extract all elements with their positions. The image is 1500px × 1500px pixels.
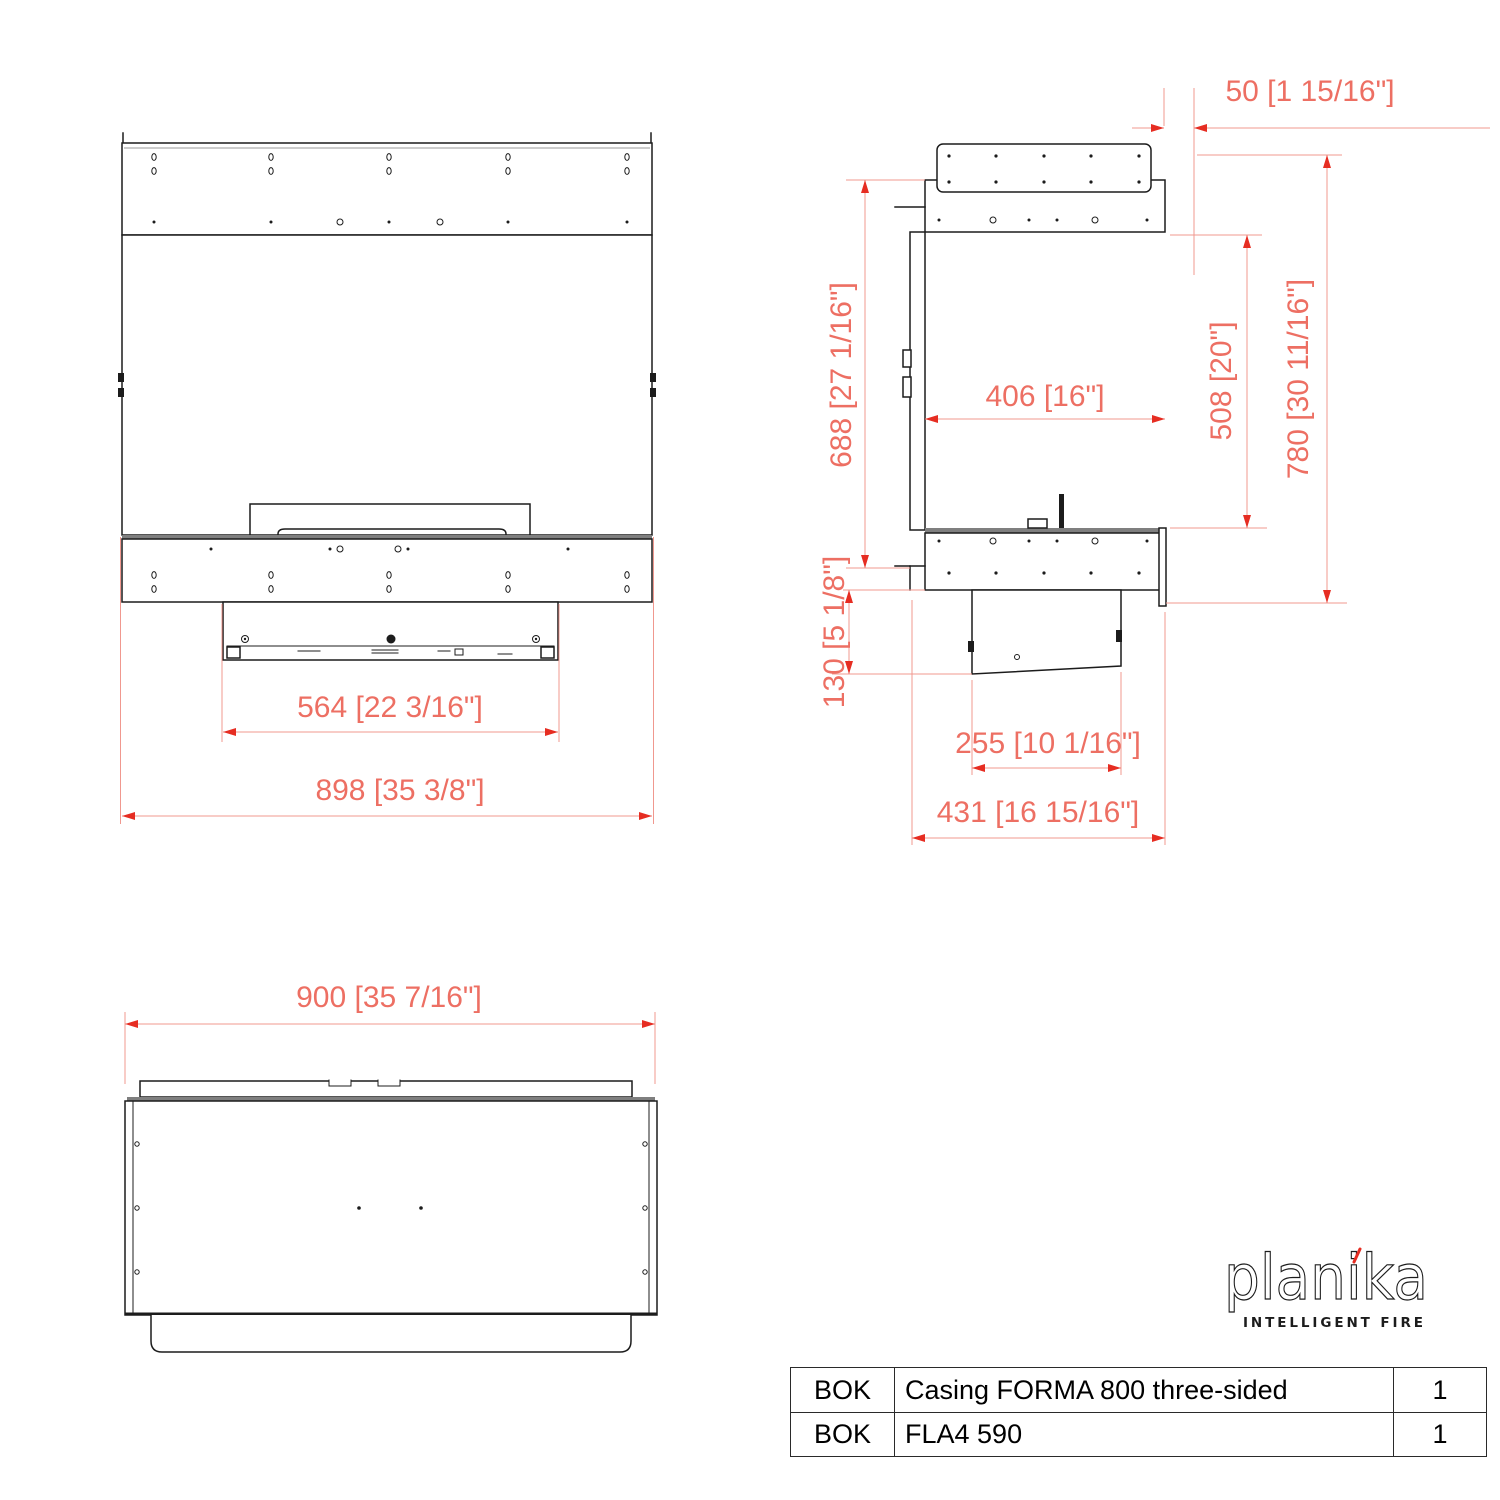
logo-wordmark: planika	[1224, 1241, 1428, 1314]
dim-side-opening-height: 508 [20"]	[1207, 221, 1237, 541]
part-qty: 1	[1393, 1368, 1486, 1412]
burner-tray-front	[223, 602, 558, 660]
dim-side-tray-depth: 255 [10 1/16"]	[888, 729, 1208, 759]
part-qty: 1	[1393, 1412, 1486, 1456]
part-description: FLA4 590	[894, 1412, 1393, 1456]
dim-side-tray-height: 130 [5 1/8"]	[820, 472, 850, 792]
dim-side-overall-depth: 431 [16 15/16"]	[878, 798, 1198, 828]
dim-front-burner-width: 564 [22 3/16"]	[230, 693, 550, 723]
dim-side-overall-height: 780 [30 11/16"]	[1284, 219, 1314, 539]
planika-logo: planika INTELLIGENT FIRE	[1210, 1235, 1440, 1335]
part-code: BOK	[791, 1368, 894, 1412]
dim-side-opening-depth: 406 [16"]	[885, 382, 1205, 412]
drawing-sheet: 564 [22 3/16"] 898 [35 3/8"] 50 [1 15/16…	[0, 0, 1500, 1500]
part-description: Casing FORMA 800 three-sided	[894, 1368, 1393, 1412]
front-view	[118, 133, 656, 660]
parts-table: BOK Casing FORMA 800 three-sided 1 BOK F…	[790, 1367, 1487, 1457]
dim-top-overall-width: 900 [35 7/16"]	[229, 983, 549, 1013]
logo-tagline: INTELLIGENT FIRE	[1243, 1315, 1427, 1331]
top-view	[125, 1079, 657, 1352]
dim-side-top-offset: 50 [1 15/16"]	[1150, 77, 1470, 107]
part-code: BOK	[791, 1412, 894, 1456]
dim-front-overall-width: 898 [35 3/8"]	[240, 776, 560, 806]
burner-tray-side	[968, 590, 1122, 674]
